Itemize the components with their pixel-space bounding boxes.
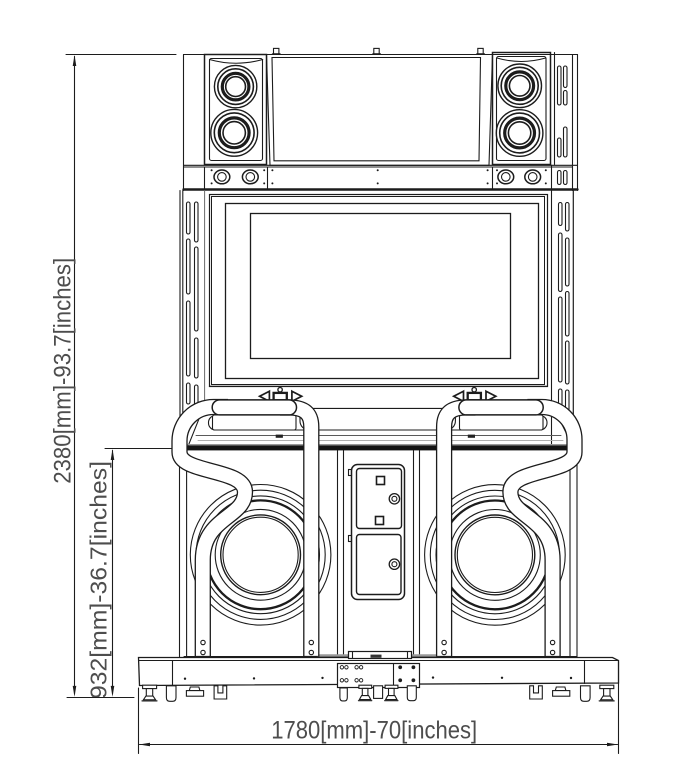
svg-text:2380[mm]-93.7[inches]: 2380[mm]-93.7[inches] xyxy=(50,258,77,484)
svg-text:932[mm]-36.7[inches]: 932[mm]-36.7[inches] xyxy=(86,461,112,699)
svg-text:1780[mm]-70[inches]: 1780[mm]-70[inches] xyxy=(271,718,477,745)
